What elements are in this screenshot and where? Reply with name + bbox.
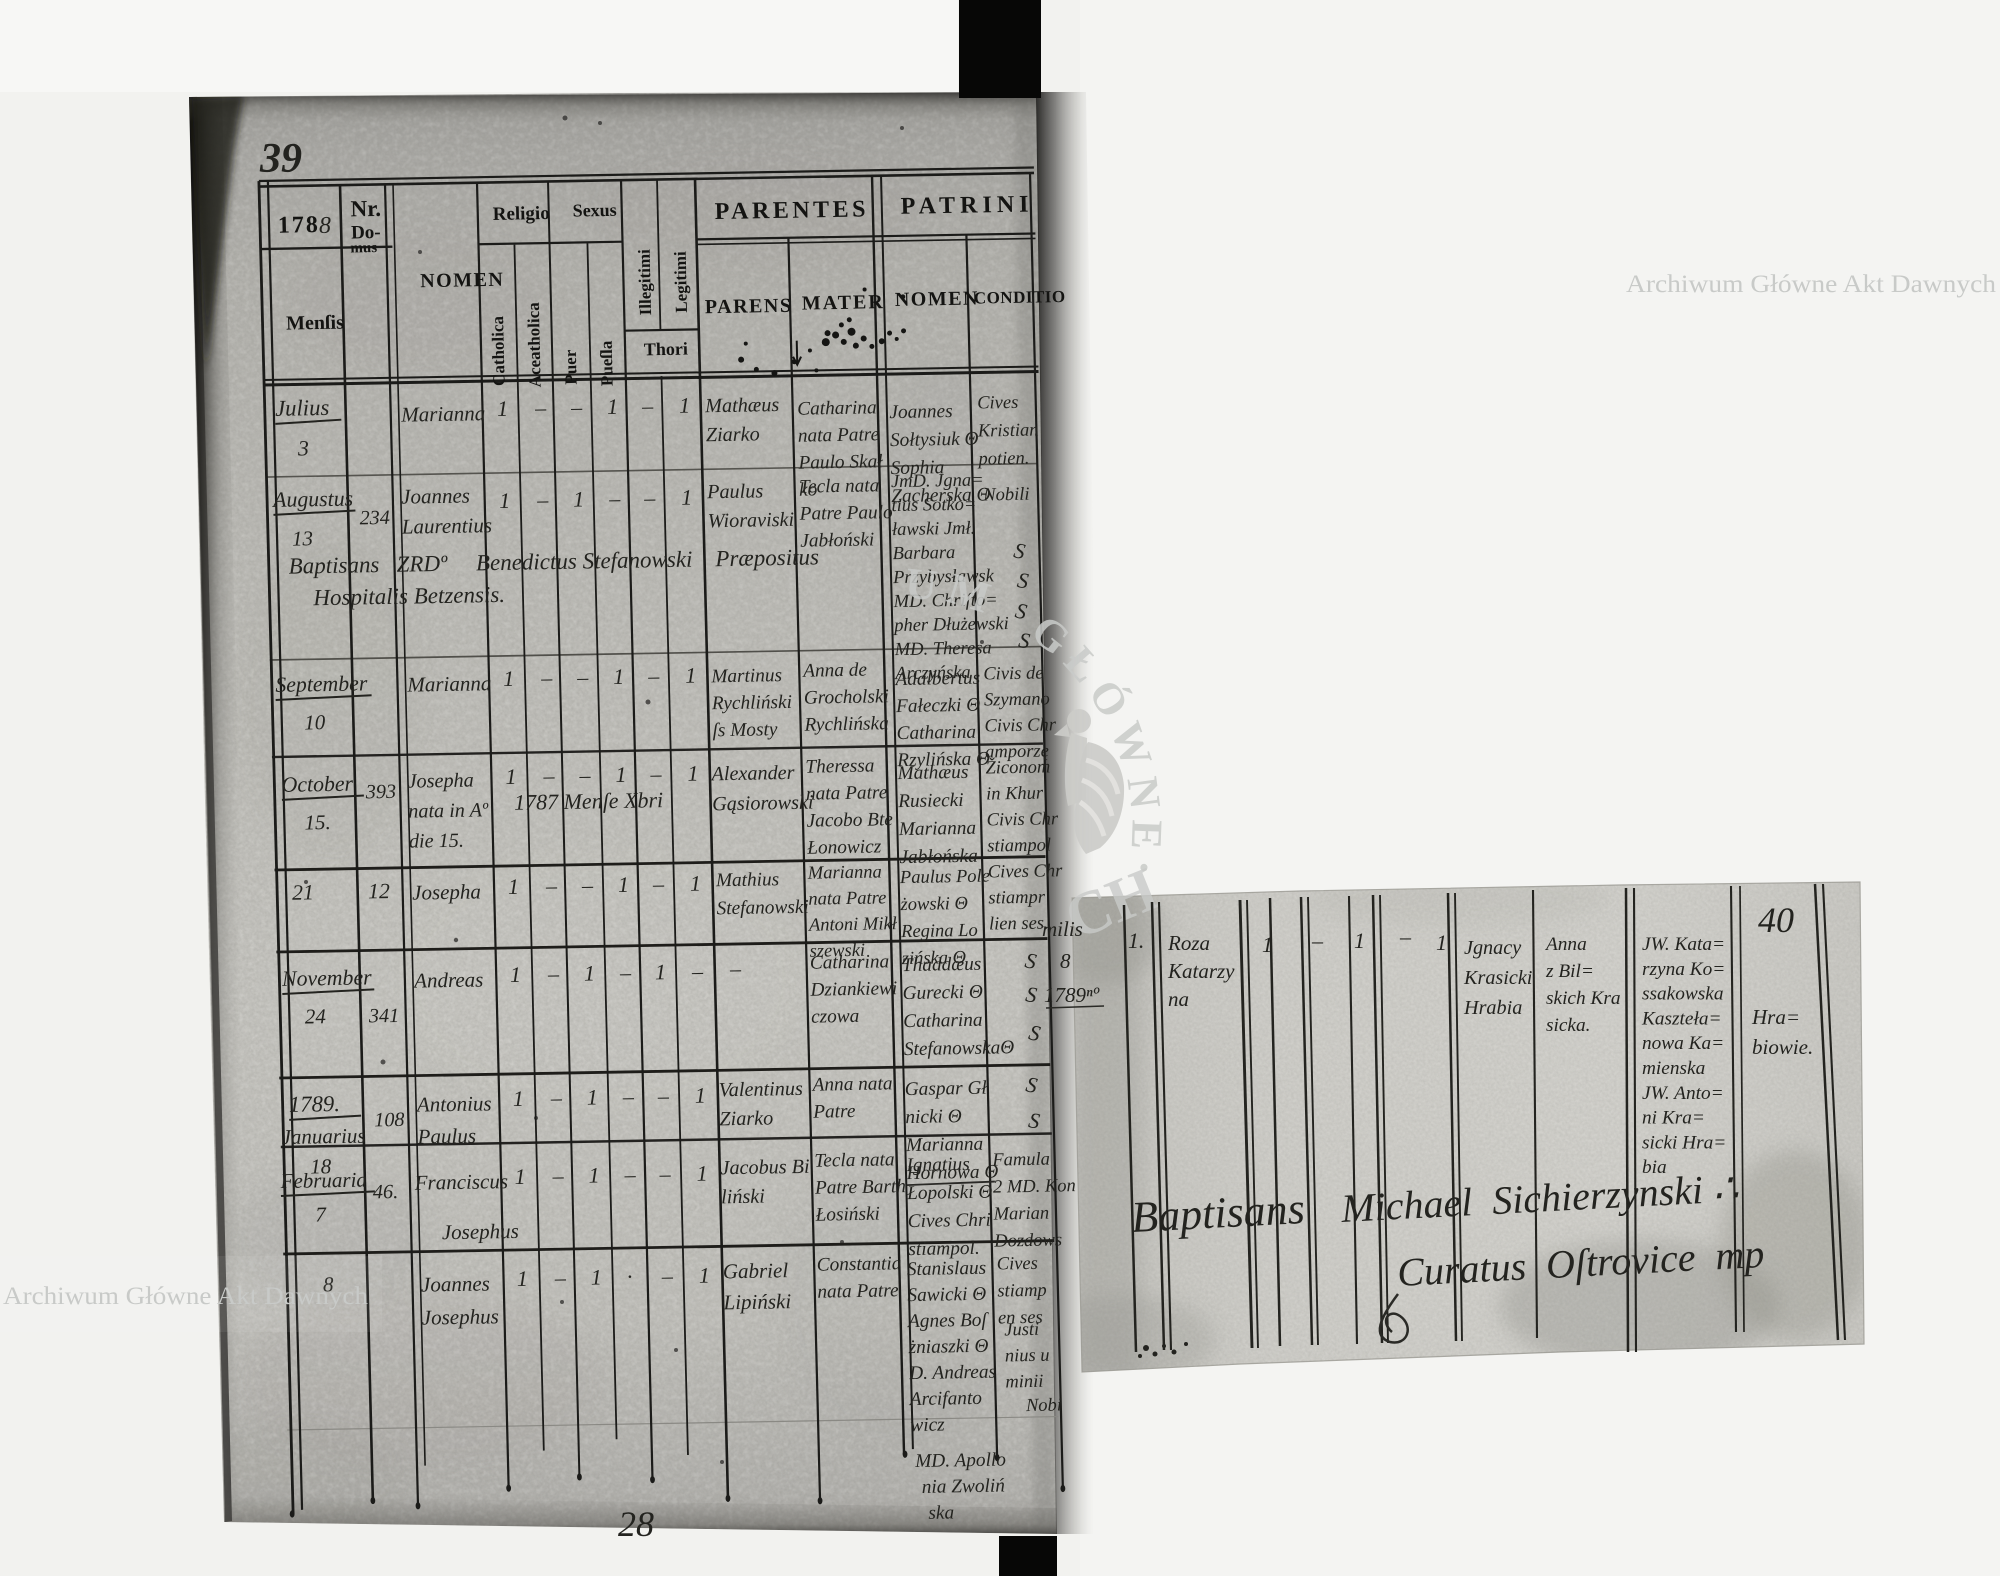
svg-text:1: 1 — [1262, 932, 1273, 957]
svg-text:Nobili: Nobili — [982, 485, 1030, 506]
svg-text:–: – — [1399, 924, 1412, 949]
svg-text:–: – — [545, 873, 559, 898]
svg-text:1: 1 — [618, 872, 630, 897]
svg-text:PATRINI: PATRINI — [900, 191, 1033, 219]
svg-text:3: 3 — [297, 436, 310, 460]
svg-text:–: – — [649, 761, 663, 786]
svg-text:1: 1 — [508, 874, 520, 899]
svg-text:Josephus: Josephus — [442, 1219, 520, 1244]
svg-text:1: 1 — [679, 393, 691, 418]
svg-text:1: 1 — [505, 764, 517, 789]
svg-text:Josepha: Josepha — [412, 879, 481, 904]
svg-text:1: 1 — [514, 1164, 526, 1189]
svg-text:Franciscus: Franciscus — [413, 1169, 508, 1195]
svg-text:28: 28 — [618, 1504, 654, 1544]
svg-text:Baptisans: Baptisans — [1130, 1184, 1306, 1242]
svg-text:–: – — [641, 393, 655, 418]
svg-text:Februaria: Februaria — [279, 1168, 367, 1194]
svg-text:Religio: Religio — [492, 203, 549, 225]
svg-text:October: October — [281, 772, 353, 797]
svg-text:–: – — [554, 1265, 568, 1290]
svg-text:1: 1 — [1436, 930, 1447, 955]
svg-text:–: – — [542, 763, 556, 788]
svg-text:Marianna: Marianna — [406, 671, 492, 696]
svg-text:November: November — [281, 965, 373, 991]
svg-text:mus: mus — [350, 240, 377, 256]
svg-text:–: – — [540, 665, 554, 690]
svg-text:Hospitalis Betzensis.: Hospitalis Betzensis. — [312, 582, 505, 610]
svg-text:1789.: 1789. — [289, 1091, 341, 1117]
svg-text:1: 1 — [584, 960, 596, 985]
svg-text:1: 1 — [655, 959, 667, 984]
svg-text:1: 1 — [497, 396, 509, 421]
svg-text:393: 393 — [365, 781, 397, 804]
svg-text:PARENS: PARENS — [705, 295, 793, 319]
svg-text:Marianna: Marianna — [400, 401, 486, 426]
svg-text:–: – — [578, 762, 592, 787]
svg-text:1: 1 — [695, 1083, 707, 1108]
svg-text:1: 1 — [510, 962, 522, 987]
svg-text:15.: 15. — [304, 810, 331, 834]
svg-text:–: – — [1311, 928, 1324, 953]
svg-text:Archiwum Główne Akt Dawnych: Archiwum Główne Akt Dawnych — [3, 1283, 369, 1310]
svg-text:–: – — [658, 1161, 672, 1186]
svg-text:–: – — [661, 1263, 675, 1288]
svg-text:Nr.: Nr. — [350, 196, 381, 222]
svg-text:1789ⁿº: 1789ⁿº — [1044, 983, 1100, 1007]
svg-text:1: 1 — [513, 1086, 525, 1111]
svg-text:milis: milis — [1042, 917, 1083, 941]
svg-text:1: 1 — [591, 1264, 603, 1289]
svg-text:–: – — [570, 394, 584, 419]
svg-text:1: 1 — [699, 1263, 711, 1288]
svg-text:1: 1 — [607, 394, 619, 419]
svg-text:8: 8 — [319, 213, 332, 239]
svg-text:–: – — [550, 1085, 564, 1110]
svg-text:1: 1 — [690, 871, 702, 896]
svg-text:NOMEN: NOMEN — [895, 287, 980, 310]
svg-text:–: – — [576, 664, 590, 689]
svg-text:8: 8 — [1060, 949, 1071, 973]
svg-text:–: – — [608, 486, 622, 511]
svg-text:1: 1 — [499, 488, 511, 513]
svg-text:–: – — [691, 959, 705, 984]
svg-text:Archiwum Główne Akt Dawnych: Archiwum Główne Akt Dawnych — [1626, 271, 1997, 298]
svg-text:Nobi: Nobi — [1025, 1395, 1062, 1416]
svg-text:–: – — [551, 1163, 565, 1188]
svg-text:Thori: Thori — [644, 339, 688, 360]
svg-text:1: 1 — [587, 1084, 599, 1109]
svg-text:·: · — [627, 1264, 633, 1289]
svg-text:–: – — [657, 1083, 671, 1108]
svg-text:–: – — [652, 871, 666, 896]
svg-text:MATER: MATER — [802, 291, 885, 314]
svg-text:–: – — [647, 663, 661, 688]
svg-text:12: 12 — [368, 879, 390, 903]
svg-text:234: 234 — [359, 507, 390, 530]
svg-text:1.: 1. — [1128, 929, 1144, 953]
svg-text:–: – — [729, 956, 743, 981]
svg-text:13: 13 — [292, 526, 314, 550]
svg-text:–: – — [643, 485, 657, 510]
svg-text:21: 21 — [292, 880, 314, 904]
svg-text:40: 40 — [1758, 900, 1794, 940]
svg-text:1: 1 — [613, 664, 625, 689]
svg-text:1: 1 — [685, 663, 697, 688]
svg-text:1: 1 — [615, 762, 627, 787]
svg-text:–: – — [622, 1084, 636, 1109]
svg-text:Illegitimi: Illegitimi — [635, 249, 656, 316]
svg-text:341: 341 — [368, 1005, 400, 1028]
svg-text:Augustus: Augustus — [271, 487, 353, 512]
svg-text:–: – — [534, 395, 548, 420]
svg-text:–: – — [581, 872, 595, 897]
svg-text:PARENTES: PARENTES — [714, 196, 869, 225]
svg-text:1: 1 — [588, 1162, 600, 1187]
svg-text:September: September — [275, 671, 368, 697]
svg-text:178: 178 — [278, 212, 321, 239]
svg-text:Pueſla: Pueſla — [597, 340, 617, 386]
svg-text:1: 1 — [681, 485, 693, 510]
svg-text:24: 24 — [305, 1004, 327, 1028]
svg-text:Januarius: Januarius — [281, 1124, 366, 1149]
svg-text:1: 1 — [687, 761, 699, 786]
svg-text:1: 1 — [517, 1266, 529, 1291]
svg-text:Andreas: Andreas — [412, 967, 484, 992]
svg-text:–: – — [619, 960, 633, 985]
svg-text:46.: 46. — [373, 1181, 399, 1203]
svg-text:Puer: Puer — [561, 349, 581, 385]
svg-text:1: 1 — [573, 486, 585, 511]
svg-text:39: 39 — [259, 136, 302, 182]
svg-text:–: – — [623, 1162, 637, 1187]
svg-text:1: 1 — [1354, 928, 1365, 953]
svg-text:108: 108 — [374, 1109, 405, 1132]
svg-text:10: 10 — [304, 710, 326, 734]
svg-text:Julius: Julius — [275, 395, 330, 421]
svg-text:CONDITIO: CONDITIO — [974, 287, 1066, 308]
svg-text:Catholica: Catholica — [488, 315, 509, 386]
svg-text:–: – — [547, 961, 561, 986]
svg-text:–: – — [536, 487, 550, 512]
svg-text:Sexus: Sexus — [572, 200, 616, 221]
svg-text:Aceatholica: Aceatholica — [524, 302, 545, 388]
svg-text:Menſis: Menſis — [286, 312, 344, 335]
svg-text:1: 1 — [503, 666, 515, 691]
svg-text:NOMEN: NOMEN — [420, 269, 505, 292]
svg-text:1: 1 — [696, 1161, 708, 1186]
svg-text:1787 Menſe Xbri: 1787 Menſe Xbri — [514, 787, 664, 815]
svg-text:Legitimi: Legitimi — [671, 251, 691, 313]
